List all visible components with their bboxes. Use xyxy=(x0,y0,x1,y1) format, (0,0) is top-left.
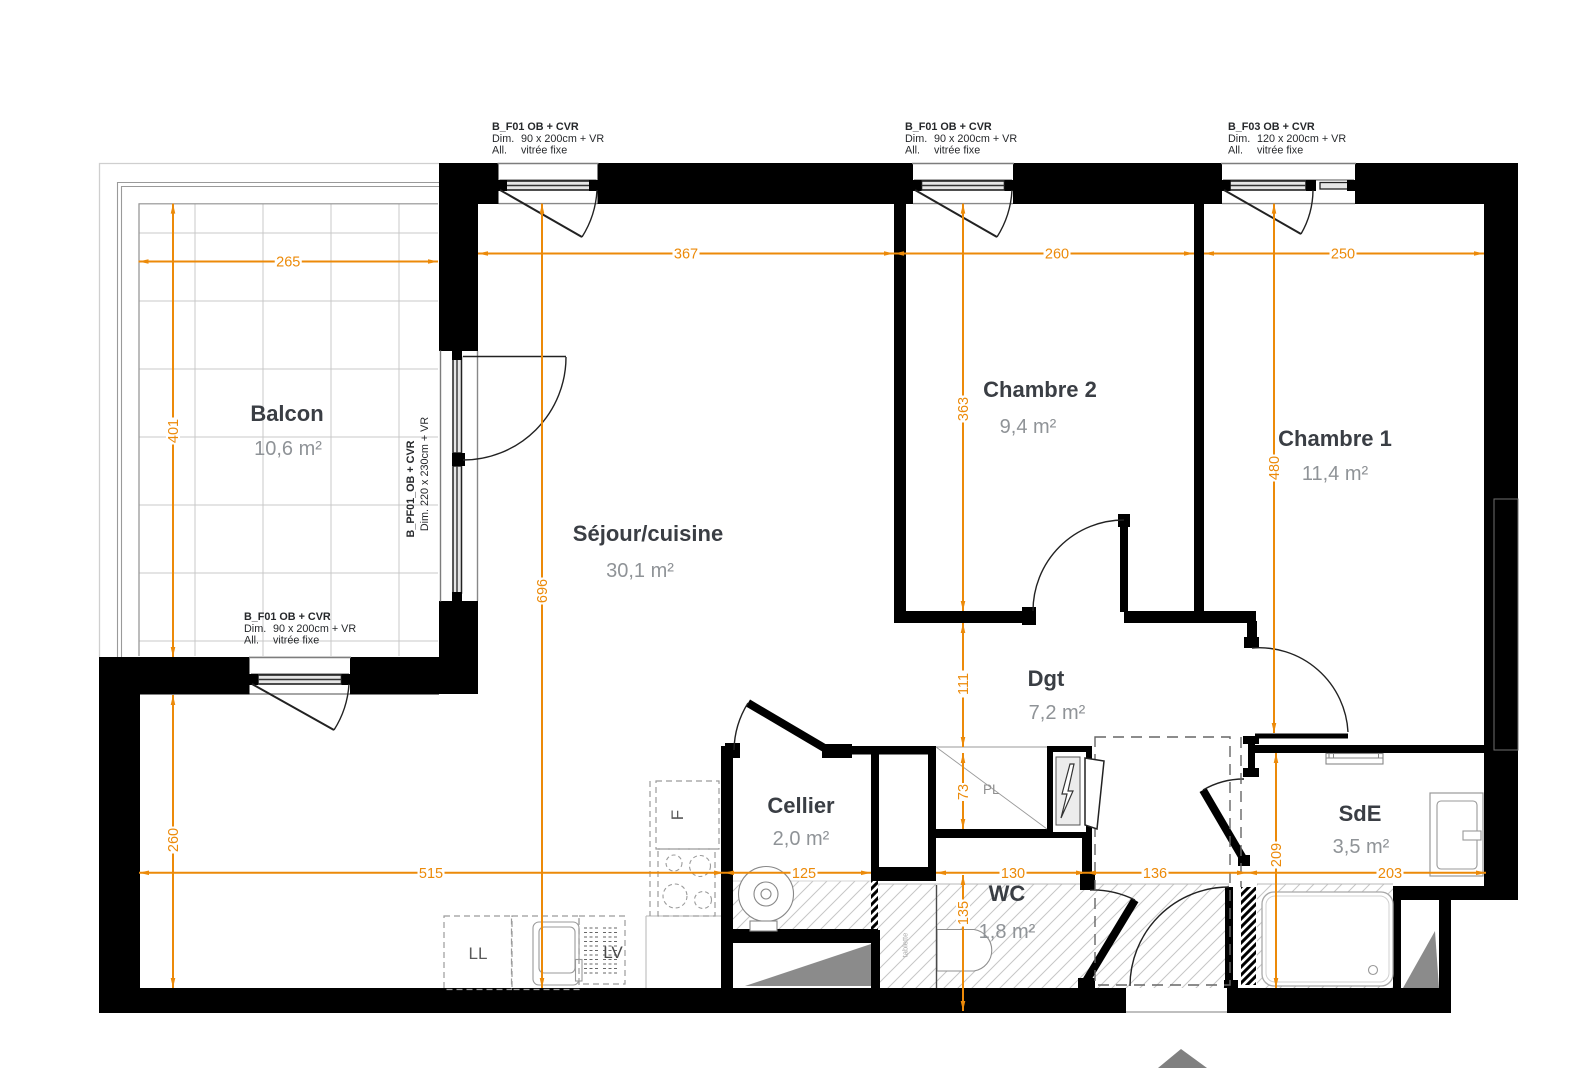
svg-text:11,4 m²: 11,4 m² xyxy=(1302,463,1369,485)
svg-text:2,0 m²: 2,0 m² xyxy=(773,828,830,850)
svg-text:vitrée fixe: vitrée fixe xyxy=(273,635,319,647)
svg-text:Chambre 1: Chambre 1 xyxy=(1278,426,1392,451)
svg-text:250: 250 xyxy=(1331,247,1355,263)
svg-text:401: 401 xyxy=(166,419,182,443)
svg-text:9,4 m²: 9,4 m² xyxy=(1000,416,1057,438)
svg-text:73: 73 xyxy=(956,784,972,800)
svg-text:SdE: SdE xyxy=(1339,801,1382,826)
svg-text:All.: All. xyxy=(1228,145,1243,157)
svg-text:B_F01 OB + CVR: B_F01 OB + CVR xyxy=(492,121,579,133)
svg-text:120 x 200cm + VR: 120 x 200cm + VR xyxy=(1257,133,1346,145)
svg-text:90 x 200cm + VR: 90 x 200cm + VR xyxy=(273,623,356,635)
svg-text:Chambre 2: Chambre 2 xyxy=(983,377,1097,402)
svg-text:135: 135 xyxy=(956,901,972,925)
svg-text:Cellier: Cellier xyxy=(767,793,835,818)
svg-text:367: 367 xyxy=(674,247,698,263)
svg-text:7,2 m²: 7,2 m² xyxy=(1029,702,1086,724)
svg-text:363: 363 xyxy=(956,397,972,421)
svg-text:LL: LL xyxy=(469,944,488,963)
svg-text:LV: LV xyxy=(603,943,623,962)
svg-text:260: 260 xyxy=(166,828,182,852)
svg-text:B_F03 OB + CVR: B_F03 OB + CVR xyxy=(1228,121,1315,133)
svg-text:Séjour/cuisine: Séjour/cuisine xyxy=(573,521,723,546)
svg-text:90 x 200cm + VR: 90 x 200cm + VR xyxy=(934,133,1017,145)
svg-text:Dim.: Dim. xyxy=(244,623,266,635)
svg-text:203: 203 xyxy=(1378,866,1402,882)
svg-text:vitrée fixe: vitrée fixe xyxy=(521,145,567,157)
svg-text:Dim.: Dim. xyxy=(1228,133,1250,145)
svg-text:PL: PL xyxy=(983,782,1000,797)
svg-text:265: 265 xyxy=(276,255,300,271)
svg-text:Dim.: Dim. xyxy=(492,133,514,145)
svg-text:Dim. 220 x 230cm + VR: Dim. 220 x 230cm + VR xyxy=(419,417,431,532)
svg-text:10,6 m²: 10,6 m² xyxy=(254,438,322,460)
svg-text:All.: All. xyxy=(492,145,507,157)
svg-text:vitrée fixe: vitrée fixe xyxy=(934,145,980,157)
svg-text:tablette: tablette xyxy=(901,933,910,958)
svg-text:Dim.: Dim. xyxy=(905,133,927,145)
svg-text:136: 136 xyxy=(1143,866,1167,882)
svg-text:Balcon: Balcon xyxy=(250,401,323,426)
svg-text:All.: All. xyxy=(244,635,259,647)
svg-text:F: F xyxy=(668,810,687,820)
svg-text:3,5 m²: 3,5 m² xyxy=(1333,836,1390,858)
svg-text:Dgt: Dgt xyxy=(1028,666,1065,691)
svg-text:B_F01 OB + CVR: B_F01 OB + CVR xyxy=(244,611,331,623)
svg-text:1,8 m²: 1,8 m² xyxy=(979,921,1036,943)
svg-text:260: 260 xyxy=(1045,247,1069,263)
svg-text:30,1 m²: 30,1 m² xyxy=(606,560,674,582)
svg-text:130: 130 xyxy=(1001,866,1025,882)
svg-text:All.: All. xyxy=(905,145,920,157)
svg-text:WC: WC xyxy=(989,881,1026,906)
svg-text:B_PF01_OB + CVR: B_PF01_OB + CVR xyxy=(405,440,417,537)
svg-text:209: 209 xyxy=(1269,843,1285,867)
svg-text:125: 125 xyxy=(792,866,816,882)
svg-text:90 x 200cm + VR: 90 x 200cm + VR xyxy=(521,133,604,145)
svg-text:B_F01 OB + CVR: B_F01 OB + CVR xyxy=(905,121,992,133)
svg-text:696: 696 xyxy=(535,579,551,603)
svg-text:480: 480 xyxy=(1267,456,1283,480)
svg-text:111: 111 xyxy=(956,673,972,695)
svg-text:515: 515 xyxy=(419,866,443,882)
svg-text:vitrée fixe: vitrée fixe xyxy=(1257,145,1303,157)
